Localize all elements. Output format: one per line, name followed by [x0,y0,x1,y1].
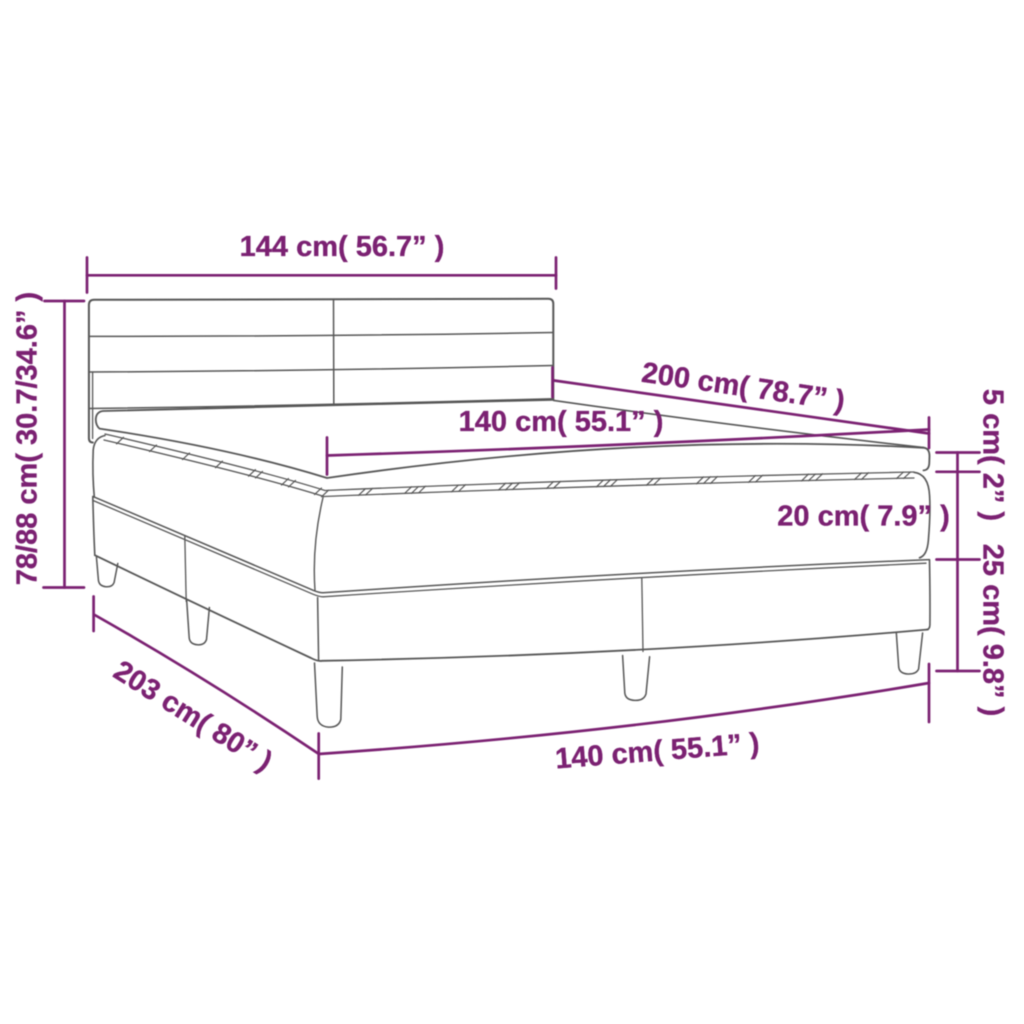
svg-text:5 cm( 2” ): 5 cm( 2” ) [977,389,1009,521]
svg-text:140 cm( 55.1” ): 140 cm( 55.1” ) [459,406,664,438]
svg-text:78/88 cm( 30.7/34.6” ): 78/88 cm( 30.7/34.6” ) [12,292,44,585]
svg-text:25 cm( 9.8” ): 25 cm( 9.8” ) [977,544,1009,716]
svg-text:144 cm( 56.7” ): 144 cm( 56.7” ) [240,231,445,263]
svg-text:20 cm( 7.9” ): 20 cm( 7.9” ) [777,501,949,533]
svg-text:140 cm( 55.1” ): 140 cm( 55.1” ) [554,728,761,776]
